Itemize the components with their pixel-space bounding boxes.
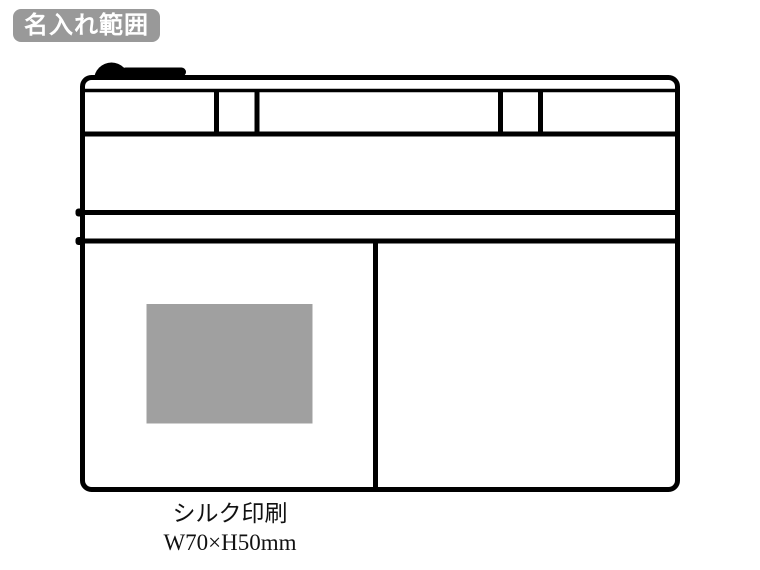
seam-nub: [76, 209, 85, 217]
print-area-rect: [147, 304, 313, 424]
print-size-text: W70×H50mm: [75, 528, 385, 557]
pouch-diagram: [0, 0, 760, 570]
print-caption: シルク印刷 W70×H50mm: [75, 499, 385, 557]
print-method-text: シルク印刷: [75, 499, 385, 528]
diagram-canvas: 名入れ範囲 シルク印刷 W70×H50mm: [0, 0, 760, 570]
pouch-outline: [83, 78, 678, 490]
seam-nub: [76, 237, 85, 245]
